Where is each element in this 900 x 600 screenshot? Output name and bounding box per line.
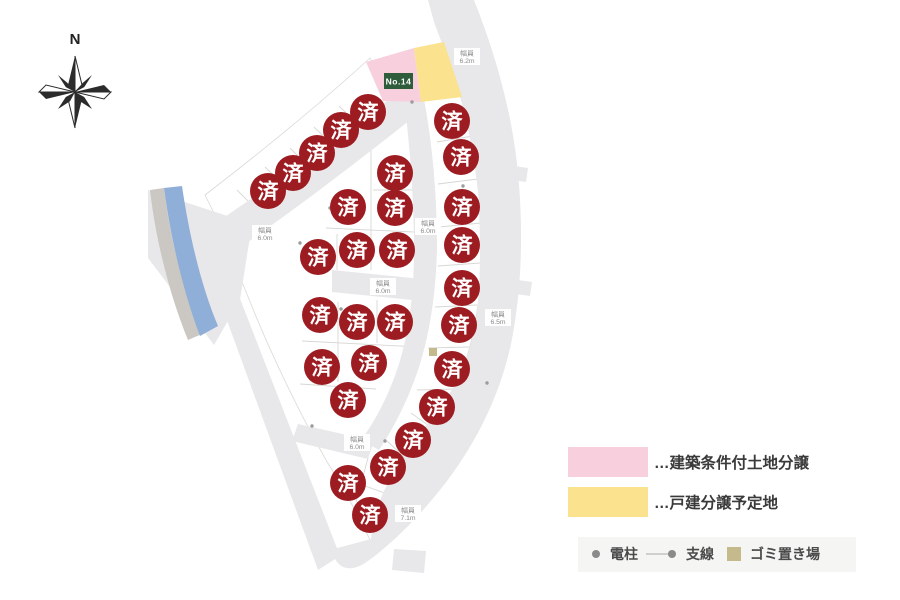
north-label: N: [70, 31, 81, 48]
sold-marker: 済: [379, 232, 415, 268]
site-plan-map: No.14 幅員6.2m幅員6.0m幅員6.0m幅員6.0m幅員6.5m幅員6.…: [0, 0, 900, 600]
sold-marker-text: 済: [387, 239, 409, 263]
sold-marker: 済: [444, 227, 480, 263]
sold-marker: 済: [434, 103, 470, 139]
garbage-site-icon: [727, 547, 741, 561]
sold-marker: 済: [377, 155, 413, 191]
sold-marker: 済: [370, 449, 406, 485]
legend-item-yellow-label: …戸建分譲予定地: [654, 493, 779, 512]
legend-item-pink-label: …建築条件付土地分譲: [654, 453, 810, 472]
support-line-dot-icon: [668, 550, 676, 558]
road-notch: [392, 549, 426, 573]
sold-marker: 済: [350, 94, 386, 130]
sold-marker-text: 済: [338, 472, 360, 496]
utility-pole-dot: [410, 100, 413, 103]
legend-swatch-yellow: [568, 487, 648, 517]
sold-marker-text: 済: [452, 277, 474, 301]
sold-marker: 済: [339, 232, 375, 268]
sold-marker-text: 済: [359, 352, 381, 376]
utility-pole-dot: [339, 307, 342, 310]
power-pole-label: 電柱: [610, 546, 638, 562]
sold-marker-text: 済: [331, 119, 353, 143]
sold-marker-text: 済: [307, 142, 329, 166]
sold-marker: 済: [377, 304, 413, 340]
road-width-label: 幅員6.0m: [344, 434, 370, 451]
road-width-label: 幅員6.0m: [370, 278, 396, 295]
sold-marker: 済: [352, 497, 388, 533]
sold-marker: 済: [304, 349, 340, 385]
sold-marker: 済: [443, 139, 479, 175]
sold-marker: 済: [302, 297, 338, 333]
sold-marker-text: 済: [360, 504, 382, 528]
sold-marker-text: 済: [338, 389, 360, 413]
road-width-value: 7.1m: [400, 515, 415, 522]
sold-marker: 済: [300, 239, 336, 275]
sold-marker-text: 済: [442, 358, 464, 382]
sold-marker: 済: [395, 422, 431, 458]
sold-marker-text: 済: [347, 239, 369, 263]
sold-marker: 済: [330, 465, 366, 501]
road-width-label: 幅員6.0m: [252, 225, 278, 242]
road-bump-2: [516, 280, 532, 296]
sold-marker: 済: [419, 389, 455, 425]
power-pole-icon: [592, 550, 600, 558]
road-width-value: 6.0m: [349, 444, 364, 451]
sold-marker: 済: [444, 270, 480, 306]
road-width-caption: 幅員: [460, 49, 474, 58]
sold-marker-text: 済: [451, 146, 473, 170]
sold-marker-text: 済: [452, 234, 474, 258]
road-width-label: 幅員6.2m: [454, 48, 480, 65]
road-width-value: 6.2m: [459, 58, 474, 65]
road-bump-1: [512, 166, 528, 182]
sold-marker-text: 済: [449, 314, 471, 338]
sold-marker-text: 済: [358, 101, 380, 125]
sold-marker-text: 済: [385, 311, 407, 335]
road-width-caption: 幅員: [258, 226, 272, 235]
utility-pole-dot: [383, 439, 386, 442]
road-width-value: 6.0m: [257, 235, 272, 242]
utility-pole-dot: [298, 241, 301, 244]
support-line-label: 支線: [685, 546, 714, 562]
garbage-spot-icon: [429, 348, 437, 356]
sold-marker-text: 済: [442, 110, 464, 134]
sold-marker-text: 済: [378, 456, 400, 480]
sold-marker: 済: [351, 345, 387, 381]
sold-marker: 済: [339, 304, 375, 340]
utility-pole-dot: [485, 381, 488, 384]
road-width-value: 6.5m: [490, 319, 505, 326]
road-width-caption: 幅員: [376, 279, 390, 288]
sold-marker: 済: [330, 382, 366, 418]
sold-marker-text: 済: [385, 197, 407, 221]
road-width-value: 6.0m: [420, 228, 435, 235]
road-width-caption: 幅員: [491, 310, 505, 319]
sold-marker: 済: [377, 190, 413, 226]
sold-marker-text: 済: [347, 311, 369, 335]
lot-number-text: No.14: [386, 77, 412, 87]
legend-swatch-pink: [568, 447, 648, 477]
road-width-label: 幅員7.1m: [395, 505, 421, 522]
legend-symbols: 電柱 支線 ゴミ置き場: [578, 537, 856, 572]
sold-marker: 済: [444, 189, 480, 225]
sold-marker: 済: [330, 189, 366, 225]
utility-pole-dot: [461, 184, 464, 187]
sold-marker-text: 済: [312, 356, 334, 380]
garbage-spots: [429, 348, 437, 356]
road-width-caption: 幅員: [421, 219, 435, 228]
sold-marker-text: 済: [427, 396, 449, 420]
sold-marker: 済: [434, 351, 470, 387]
sold-marker-text: 済: [338, 196, 360, 220]
site-plan-screenshot: No.14 幅員6.2m幅員6.0m幅員6.0m幅員6.0m幅員6.5m幅員6.…: [0, 0, 900, 600]
road-width-label: 幅員6.0m: [415, 218, 441, 235]
sold-marker: 済: [441, 307, 477, 343]
utility-pole-dot: [310, 424, 313, 427]
garbage-site-label: ゴミ置き場: [750, 546, 820, 562]
legend: …建築条件付土地分譲 …戸建分譲予定地 電柱 支線 ゴミ置き場: [568, 447, 856, 572]
sold-marker-text: 済: [258, 180, 280, 204]
sold-marker-text: 済: [452, 196, 474, 220]
compass-rose: N: [39, 31, 111, 128]
road-width-value: 6.0m: [375, 288, 390, 295]
road-width-label: 幅員6.5m: [485, 309, 511, 326]
sold-marker-text: 済: [385, 162, 407, 186]
sold-marker-text: 済: [308, 246, 330, 270]
sold-marker-text: 済: [403, 429, 425, 453]
lot-number-label: No.14: [384, 73, 413, 89]
sold-marker-text: 済: [283, 162, 305, 186]
road-width-caption: 幅員: [401, 506, 415, 515]
sold-marker-text: 済: [310, 304, 332, 328]
road-width-caption: 幅員: [350, 435, 364, 444]
